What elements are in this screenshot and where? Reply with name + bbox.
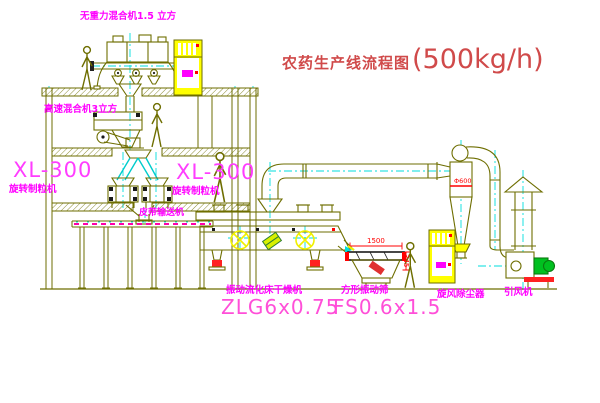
title-text: 农药生产线流程图 — [282, 52, 410, 73]
dryer-model-label: ZLG6x0.75 — [221, 297, 339, 317]
column-right — [250, 88, 256, 289]
floor-slab — [52, 148, 112, 156]
cyclone-diameter-mark: Φ600 — [454, 178, 472, 185]
cyclone-label: 旋风除尘器 — [437, 290, 485, 300]
indicator-light — [195, 71, 198, 74]
sieve-width-dimension: 1500 — [367, 238, 385, 245]
fluid-bed-dryer — [196, 205, 354, 270]
steel-structure — [40, 88, 557, 289]
cabinet-text-mark — [182, 70, 193, 77]
conveyor-legs — [80, 227, 204, 288]
sieve-discharge — [369, 261, 385, 275]
belt-conveyor-label: 皮带输送机 — [139, 209, 184, 218]
downcomer-inner — [467, 158, 514, 250]
gravity-mixer — [90, 35, 185, 112]
high-speed-mixer-label: 高速混合机3立方 — [44, 105, 117, 115]
sieve-height-dimension: 345 — [402, 254, 409, 267]
cad-flow-diagram: 农药生产线流程图 (500kg/h) 无重力混合机1.5 立方 高速混合机3立方… — [0, 0, 600, 403]
high-speed-mixer — [92, 112, 144, 148]
cyclone-separator — [450, 145, 514, 258]
indicator-light — [449, 234, 452, 237]
granulator-left-name: 旋转制粒机 — [9, 185, 57, 195]
fan-base — [524, 277, 554, 282]
sieve-model-label: FS0.6x1.5 — [333, 297, 441, 317]
vertical-chute — [198, 96, 212, 148]
granulator-right-model: XL-300 — [176, 162, 255, 183]
gravity-mixer-label: 无重力混合机1.5 立方 — [80, 12, 176, 22]
control-cabinet-2 — [429, 230, 455, 283]
indicator-light — [448, 263, 451, 266]
fan-housing — [506, 252, 534, 278]
indicator-light — [196, 44, 199, 47]
control-cabinet-1 — [174, 40, 202, 95]
exhaust-duct — [258, 162, 450, 212]
floor-slab — [162, 148, 250, 156]
cabinet-text-mark — [436, 262, 446, 268]
exhaust-stack — [515, 192, 532, 250]
mixer-hopper-valves — [112, 70, 160, 84]
square-sieve — [345, 243, 410, 289]
person-figure — [152, 104, 162, 147]
floor-slab — [42, 88, 118, 96]
belt-conveyor — [72, 221, 213, 288]
dryer-legs-dampers — [209, 250, 323, 270]
granulator-left-model: XL-300 — [13, 160, 92, 181]
column-middle — [232, 88, 238, 289]
title-capacity: (500kg/h) — [412, 44, 544, 75]
dryer-nameplate — [263, 232, 282, 249]
fan-and-stack — [505, 177, 555, 288]
diagram-title: 农药生产线流程图 (500kg/h) — [282, 44, 544, 75]
granulator-right-name: 旋转制粒机 — [172, 187, 220, 197]
floor-slab — [52, 203, 133, 211]
cyclone-outlet-elbow — [452, 145, 468, 161]
fan-label: 引风机 — [504, 288, 533, 298]
stack-rain-cap — [505, 177, 542, 192]
